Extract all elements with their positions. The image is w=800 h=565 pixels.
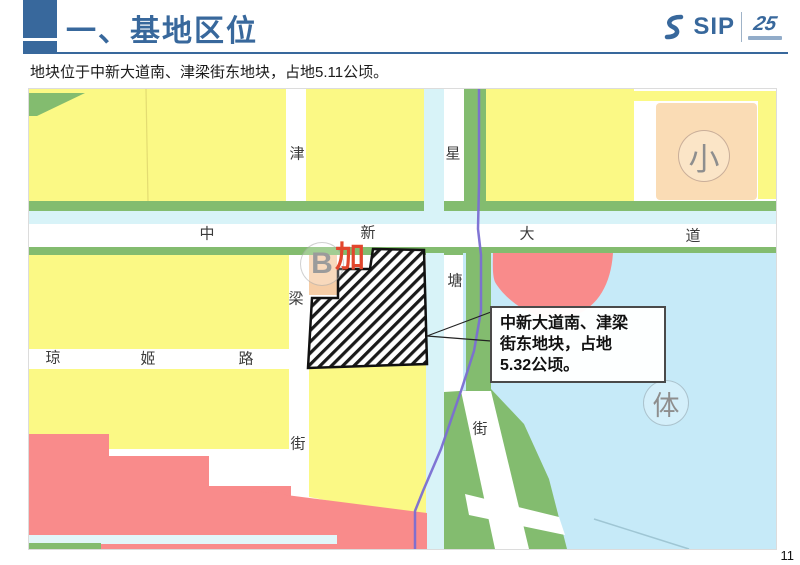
logo-divider [741, 12, 742, 42]
road-label-tang: 塘 [447, 270, 462, 291]
callout-line-1: 中新大道南、津梁 [500, 313, 656, 334]
anniversary-number: 25 [752, 14, 779, 34]
road-label-ji: 姬 [140, 348, 155, 369]
jia-marker: 加 [335, 232, 365, 276]
sports-marker: 体 [643, 380, 689, 426]
road-label-qiong: 琼 [45, 347, 60, 368]
school-marker-label: 小 [689, 134, 720, 179]
road-label-da: 大 [519, 223, 534, 244]
sip-logo: SIP 25 [661, 8, 782, 46]
page-title: 一、基地区位 [66, 6, 258, 50]
sip-logo-text: SIP [693, 13, 735, 41]
b-marker-label: B [311, 247, 333, 281]
sip-swoosh-icon [661, 14, 687, 40]
anniversary-logo: 25 [748, 14, 782, 40]
road-label-zhong: 中 [199, 223, 214, 244]
school-marker: 小 [678, 130, 730, 182]
site-callout-box: 中新大道南、津梁 街东地块，占地 5.32公顷。 [490, 306, 666, 383]
header-rule [23, 52, 788, 54]
callout-line-2: 街东地块，占地 [500, 334, 656, 355]
intro-text: 地块位于中新大道南、津梁街东地块，占地5.11公顷。 [30, 61, 388, 82]
road-label-jie-right: 街 [472, 418, 487, 439]
water-area [426, 253, 776, 549]
anniversary-underline [748, 36, 782, 40]
callout-line-3: 5.32公顷。 [500, 355, 656, 376]
title-accent-square [23, 0, 57, 38]
sports-marker-label: 体 [653, 384, 680, 423]
road-label-liang: 梁 [288, 288, 303, 309]
road-label-lu: 路 [238, 348, 253, 369]
title-accent-bar [23, 41, 57, 52]
road-label-xing: 星 [445, 143, 460, 164]
road-label-jin: 津 [289, 143, 304, 164]
page-number: 11 [781, 548, 795, 563]
road-label-dao: 道 [685, 225, 700, 246]
road-label-jie-left: 街 [290, 433, 305, 454]
